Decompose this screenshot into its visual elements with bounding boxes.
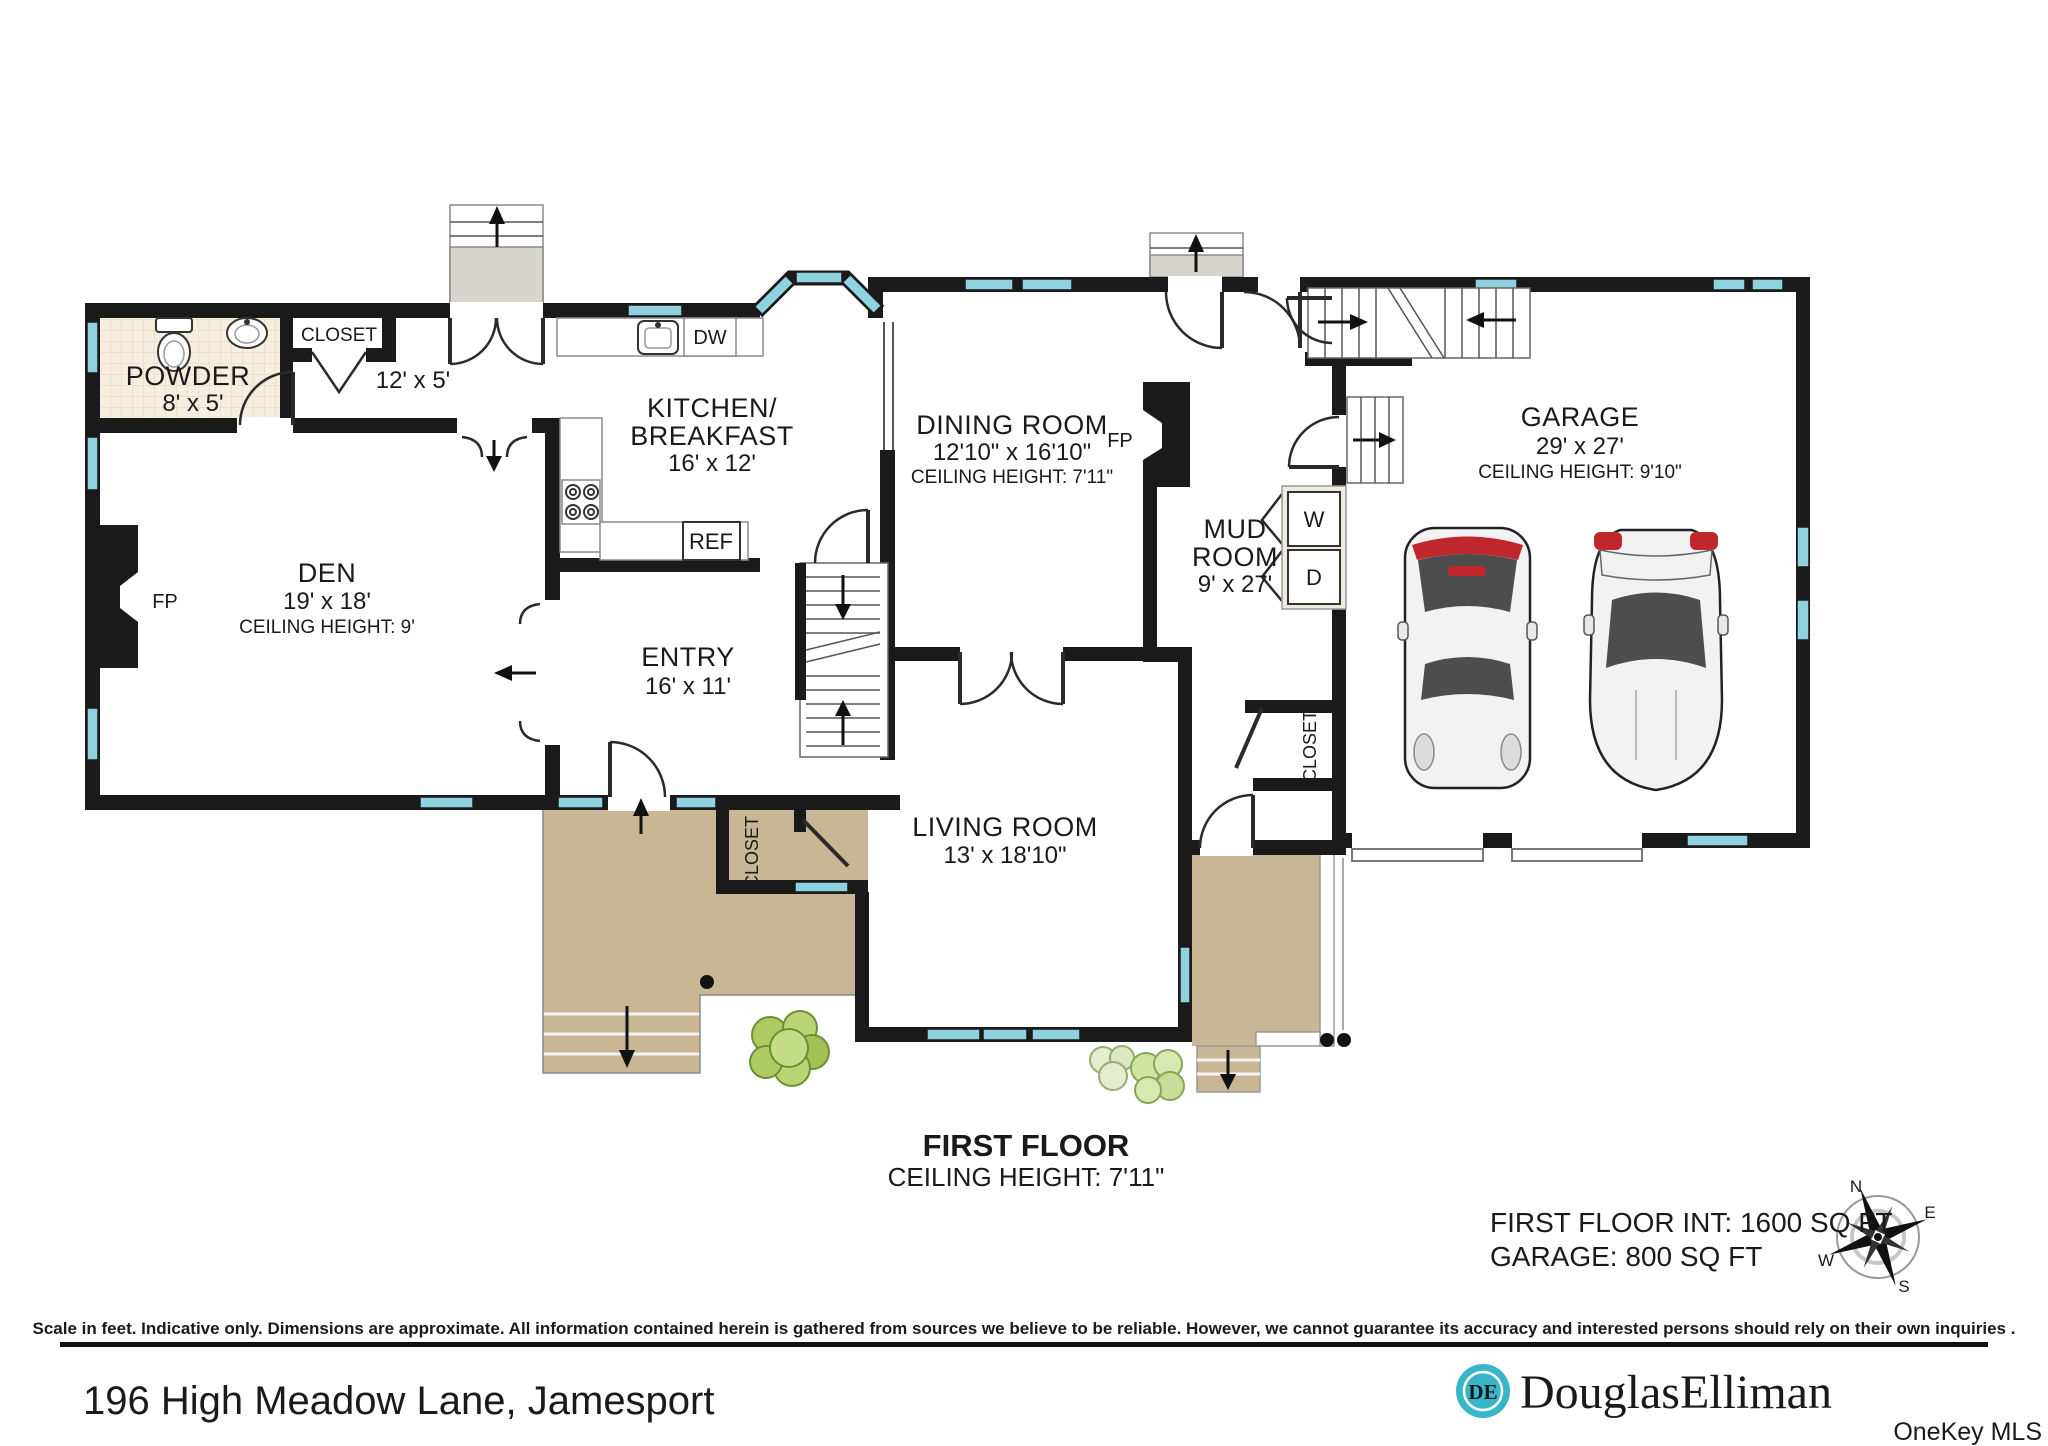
floorplan-page: N E W S POWDER 8' x 5' CLOSET 12' x 5' K… <box>0 0 2048 1446</box>
garage-entry-stairs <box>1347 397 1403 483</box>
plan-title: FIRST FLOOR <box>923 1128 1130 1163</box>
driveway-post <box>1337 1033 1351 1047</box>
den-fireplace-icon <box>85 525 138 668</box>
garage-doors <box>1352 849 1642 861</box>
washer-label: W <box>1304 507 1325 532</box>
rear-stair-center <box>1150 233 1243 277</box>
bush-icon <box>750 1011 829 1086</box>
entry-closet-label: CLOSET <box>742 816 762 888</box>
walls <box>85 276 1810 1042</box>
hall-dims: 12' x 5' <box>376 367 451 394</box>
dining-label: DINING ROOM <box>916 410 1108 440</box>
den-label: DEN <box>298 558 357 588</box>
rear-stair-left <box>450 205 543 303</box>
mud-label-2: ROOM <box>1192 542 1278 572</box>
kitchen-label-2: BREAKFAST <box>630 421 794 451</box>
dishwasher-label: DW <box>693 327 726 349</box>
sink-icon <box>227 318 267 348</box>
mud-label-1: MUD <box>1204 514 1267 544</box>
compass-w: W <box>1818 1251 1834 1270</box>
kitchen-label-1: KITCHEN/ <box>647 393 777 423</box>
entry-label: ENTRY <box>641 642 735 672</box>
compass-e: E <box>1924 1203 1935 1222</box>
garage-ceiling: CEILING HEIGHT: 9'10" <box>1478 462 1682 483</box>
dining-dims: 12'10" x 16'10" <box>933 439 1091 466</box>
garage-switchback-stairs <box>1308 288 1530 358</box>
hall-closet-label: CLOSET <box>301 325 377 346</box>
footer-divider <box>60 1342 1988 1347</box>
porch-post <box>700 975 714 989</box>
den-fireplace-label: FP <box>152 591 178 613</box>
living-label: LIVING ROOM <box>912 812 1098 842</box>
bush-icon <box>1131 1050 1184 1103</box>
laundry-icons <box>1282 486 1346 609</box>
powder-dims: 8' x 5' <box>162 390 223 417</box>
garage-label: GARAGE <box>1521 402 1640 432</box>
front-porch <box>543 810 868 1073</box>
compass-n: N <box>1850 1177 1862 1196</box>
floorplan-canvas: N E W S POWDER 8' x 5' CLOSET 12' x 5' K… <box>0 0 2048 1446</box>
brand-monogram: DE <box>1468 1380 1497 1404</box>
dryer-label: D <box>1306 565 1322 590</box>
dining-fireplace-label: FP <box>1107 430 1133 452</box>
car-icon <box>1584 530 1728 790</box>
den-dims: 19' x 18' <box>283 588 371 615</box>
brand-name: DouglasElliman <box>1520 1366 1832 1419</box>
mud-dims: 9' x 27' <box>1198 571 1273 598</box>
entry-dims: 16' x 11' <box>645 673 731 700</box>
disclaimer-text: Scale in feet. Indicative only. Dimensio… <box>33 1319 2016 1338</box>
mls-attribution: OneKey MLS <box>1893 1418 2042 1446</box>
deck-post <box>1320 1033 1334 1047</box>
main-staircase <box>795 563 888 757</box>
plan-title-ceiling: CEILING HEIGHT: 7'11" <box>888 1162 1165 1192</box>
living-dims: 13' x 18'10" <box>943 842 1066 869</box>
bush-icon <box>1090 1046 1134 1090</box>
refrigerator-label: REF <box>689 529 733 554</box>
dining-ceiling: CEILING HEIGHT: 7'11" <box>911 467 1113 488</box>
area-summary-line2: GARAGE: 800 SQ FT <box>1490 1241 1762 1272</box>
kitchen-dining-railing <box>884 322 893 450</box>
brand-logo: DE DouglasElliman OneKey MLS <box>1456 1364 2042 1446</box>
kitchen-dims: 16' x 12' <box>668 450 756 477</box>
den-ceiling: CEILING HEIGHT: 9' <box>239 617 415 638</box>
garage-dims: 29' x 27' <box>1536 433 1624 460</box>
car-icon <box>1398 528 1537 788</box>
mud-closet-label: CLOSET <box>1300 710 1320 782</box>
property-address: 196 High Meadow Lane, Jamesport <box>83 1379 714 1423</box>
powder-label: POWDER <box>126 361 251 391</box>
area-summary-line1: FIRST FLOOR INT: 1600 SQ FT <box>1490 1207 1892 1238</box>
compass-s: S <box>1898 1277 1909 1296</box>
rear-deck <box>1192 850 1334 1092</box>
